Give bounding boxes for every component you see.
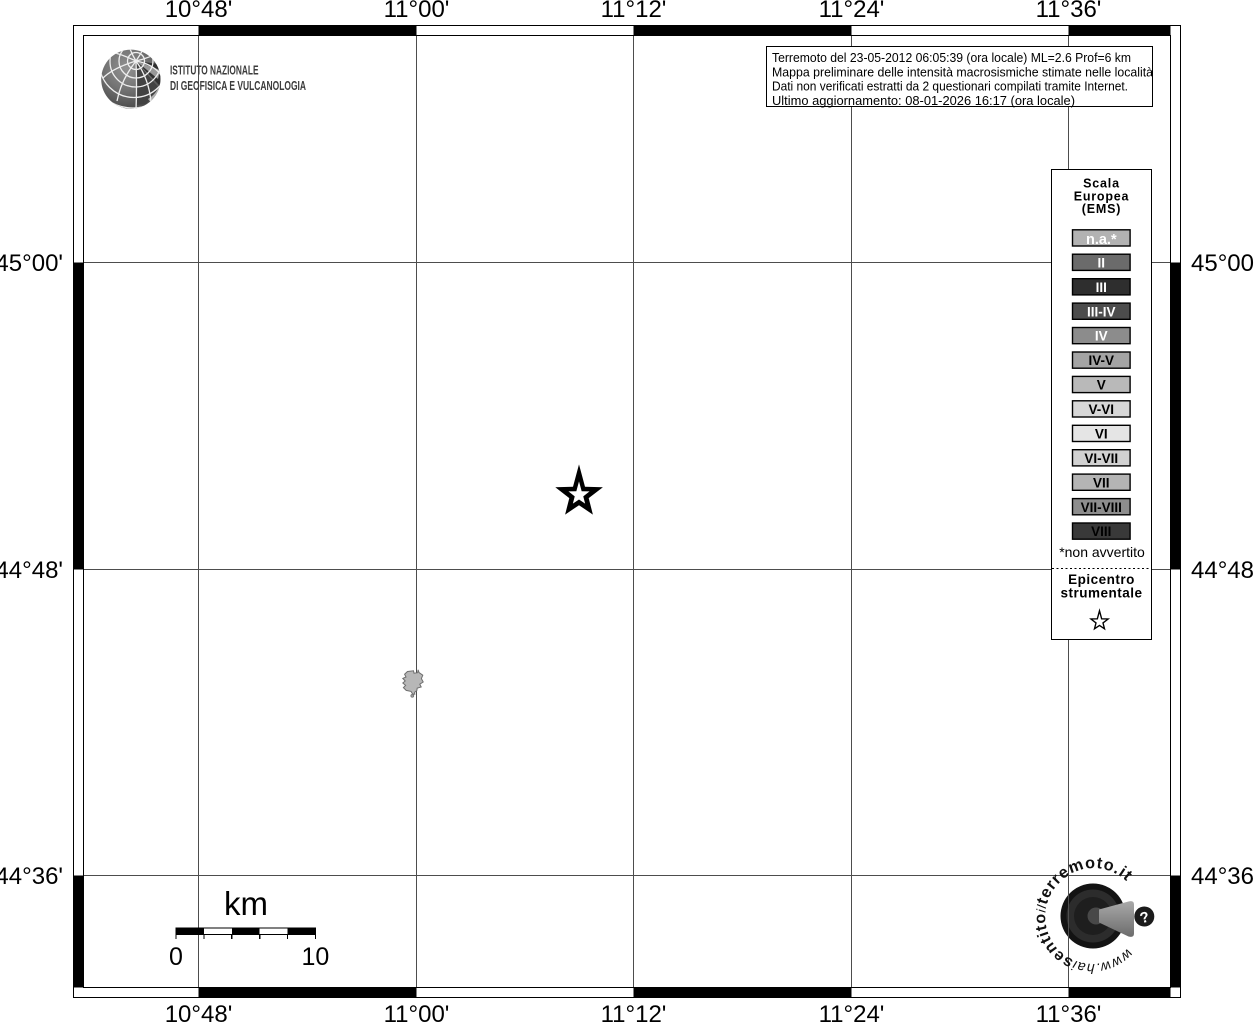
svg-text:11°12': 11°12' — [601, 0, 667, 23]
svg-text:11°00': 11°00' — [384, 1001, 450, 1024]
svg-text:11°24': 11°24' — [819, 0, 885, 23]
svg-text:44°48': 44°48' — [0, 557, 63, 584]
svg-text:II: II — [1098, 255, 1106, 270]
svg-text:IV: IV — [1095, 329, 1108, 344]
svg-text:*non avvertito: *non avvertito — [1059, 544, 1145, 560]
svg-text:11°36': 11°36' — [1036, 1001, 1102, 1024]
svg-text:44°36': 44°36' — [1191, 863, 1254, 890]
svg-text:(EMS): (EMS) — [1082, 202, 1121, 216]
svg-text:11°36': 11°36' — [1036, 0, 1102, 23]
svg-text:km: km — [224, 885, 268, 922]
svg-text:Mappa preliminare delle intens: Mappa preliminare delle intensità macros… — [772, 64, 1154, 79]
svg-text:Terremoto del 23-05-2012 06:05: Terremoto del 23-05-2012 06:05:39 (ora l… — [772, 50, 1131, 65]
svg-text:11°12': 11°12' — [601, 1001, 667, 1024]
svg-text:44°48': 44°48' — [1191, 557, 1254, 584]
svg-text:0: 0 — [169, 943, 183, 971]
svg-text:Dati non verificati estratti d: Dati non verificati estratti da 2 questi… — [772, 79, 1128, 94]
svg-text:45°00': 45°00' — [1191, 250, 1254, 277]
svg-text:VI-VII: VI-VII — [1084, 451, 1118, 466]
svg-text:III: III — [1096, 280, 1107, 295]
svg-text:10: 10 — [301, 943, 329, 971]
svg-text:11°24': 11°24' — [819, 1001, 885, 1024]
svg-text:44°36': 44°36' — [0, 863, 63, 890]
svg-text:10°48': 10°48' — [165, 0, 233, 23]
svg-text:IV-V: IV-V — [1089, 353, 1115, 368]
svg-text:45°00': 45°00' — [0, 250, 63, 277]
svg-text:DI GEOFISICA E VULCANOLOGIA: DI GEOFISICA E VULCANOLOGIA — [170, 78, 306, 93]
svg-text:n.a.*: n.a.* — [1086, 232, 1117, 248]
svg-text:11°00': 11°00' — [384, 0, 450, 23]
svg-text:ISTITUTO NAZIONALE: ISTITUTO NAZIONALE — [170, 63, 259, 78]
svg-text:VIII: VIII — [1091, 524, 1111, 539]
svg-text:VII: VII — [1093, 475, 1110, 490]
svg-text:10°48': 10°48' — [165, 1001, 233, 1024]
svg-text:V: V — [1097, 378, 1106, 393]
svg-text:VII-VIII: VII-VIII — [1081, 500, 1122, 515]
svg-text:VI: VI — [1095, 427, 1108, 442]
svg-text:III-IV: III-IV — [1087, 304, 1116, 319]
svg-text:V-VI: V-VI — [1089, 402, 1115, 417]
svg-text:strumentale: strumentale — [1060, 586, 1142, 601]
svg-text:Ultimo aggiornamento: 08-01-20: Ultimo aggiornamento: 08-01-2026 16:17 (… — [772, 93, 1075, 108]
